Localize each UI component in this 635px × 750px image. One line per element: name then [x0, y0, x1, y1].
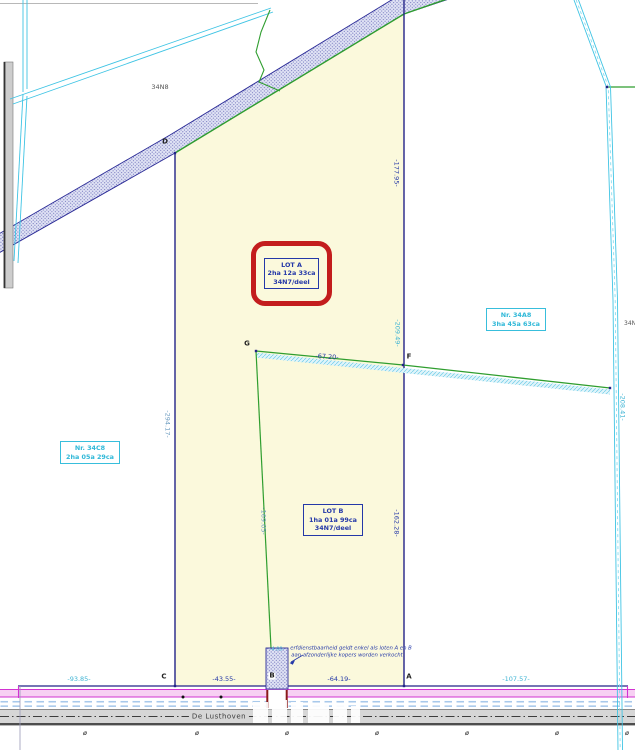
survey-marker-icon: ø [83, 730, 87, 737]
right-ditch-lines [574, 0, 623, 750]
servitude-note-line1: erfdienstbaarheid geldt enkel als loten … [290, 646, 412, 651]
neighbor-left-nr: Nr. 34C8 [64, 444, 116, 453]
lot-b-label: LOT B 1ha 01a 99ca 34N7/deel [303, 504, 363, 536]
point-c: C [161, 674, 166, 681]
point-g: G [244, 341, 250, 348]
survey-marker-icon: ø [375, 730, 379, 737]
label-34n8: 34N8 [151, 84, 168, 91]
point-f: F [407, 354, 412, 361]
dim-g-f: -67.20- [315, 353, 339, 361]
survey-marker-icon: ø [555, 730, 559, 737]
neighbor-right-area: 3ha 45a 63ca [490, 320, 542, 329]
survey-marker-icon: ø [625, 730, 629, 737]
lot-a-area: 2ha 12a 33ca [268, 269, 316, 278]
dim-frontage-right: -107.57- [502, 676, 529, 683]
plan-geometry [0, 0, 635, 750]
dim-frontage-b-a: -64.19- [327, 676, 350, 683]
point-a: A [406, 674, 411, 681]
survey-marker-icon: ø [465, 730, 469, 737]
dim-east-lower: -162.28- [393, 509, 400, 536]
point-d: D [162, 139, 168, 146]
label-right-edge: 34N [624, 321, 635, 327]
dim-east-mid: -209.49- [394, 319, 401, 346]
neighbor-right-nr: Nr. 34A8 [490, 311, 542, 320]
dim-frontage-left: -93.85- [67, 676, 90, 683]
dim-strip-width: -4.00- [270, 648, 285, 653]
lot-b-parcel: 34N7/deel [307, 524, 359, 533]
cadastral-plan: LOT A 2ha 12a 33ca 34N7/deel LOT B 1ha 0… [0, 0, 635, 750]
servitude-note-line2: aan afzonderlijke kopers worden verkocht [291, 653, 402, 658]
dim-right-boundary: -208.41- [619, 393, 626, 420]
dim-west-side: -294.17- [164, 410, 171, 437]
lot-b-title: LOT B [307, 507, 359, 516]
lot-a-parcel: 34N7/deel [268, 278, 316, 287]
lot-a-label: LOT A 2ha 12a 33ca 34N7/deel [264, 258, 320, 290]
neighbor-right-label: Nr. 34A8 3ha 45a 63ca [486, 308, 546, 331]
lot-a-title: LOT A [268, 261, 316, 270]
lot-b-area: 1ha 01a 99ca [307, 516, 359, 525]
servitude-strip [266, 648, 288, 689]
point-b: B [268, 673, 275, 680]
survey-marker-icon: ø [285, 730, 289, 737]
dim-frontage-c-b: -43.55- [212, 676, 235, 683]
neighbor-left-label: Nr. 34C8 2ha 05a 29ca [60, 441, 120, 464]
dim-east-upper: -177.95- [393, 159, 400, 186]
dim-g-road: -169.05- [260, 507, 267, 534]
survey-marker-icon: ø [195, 730, 199, 737]
lot-a-highlight-circle: LOT A 2ha 12a 33ca 34N7/deel [251, 241, 332, 306]
neighbor-left-area: 2ha 05a 29ca [64, 453, 116, 462]
road-name: De Lusthoven [189, 713, 249, 720]
